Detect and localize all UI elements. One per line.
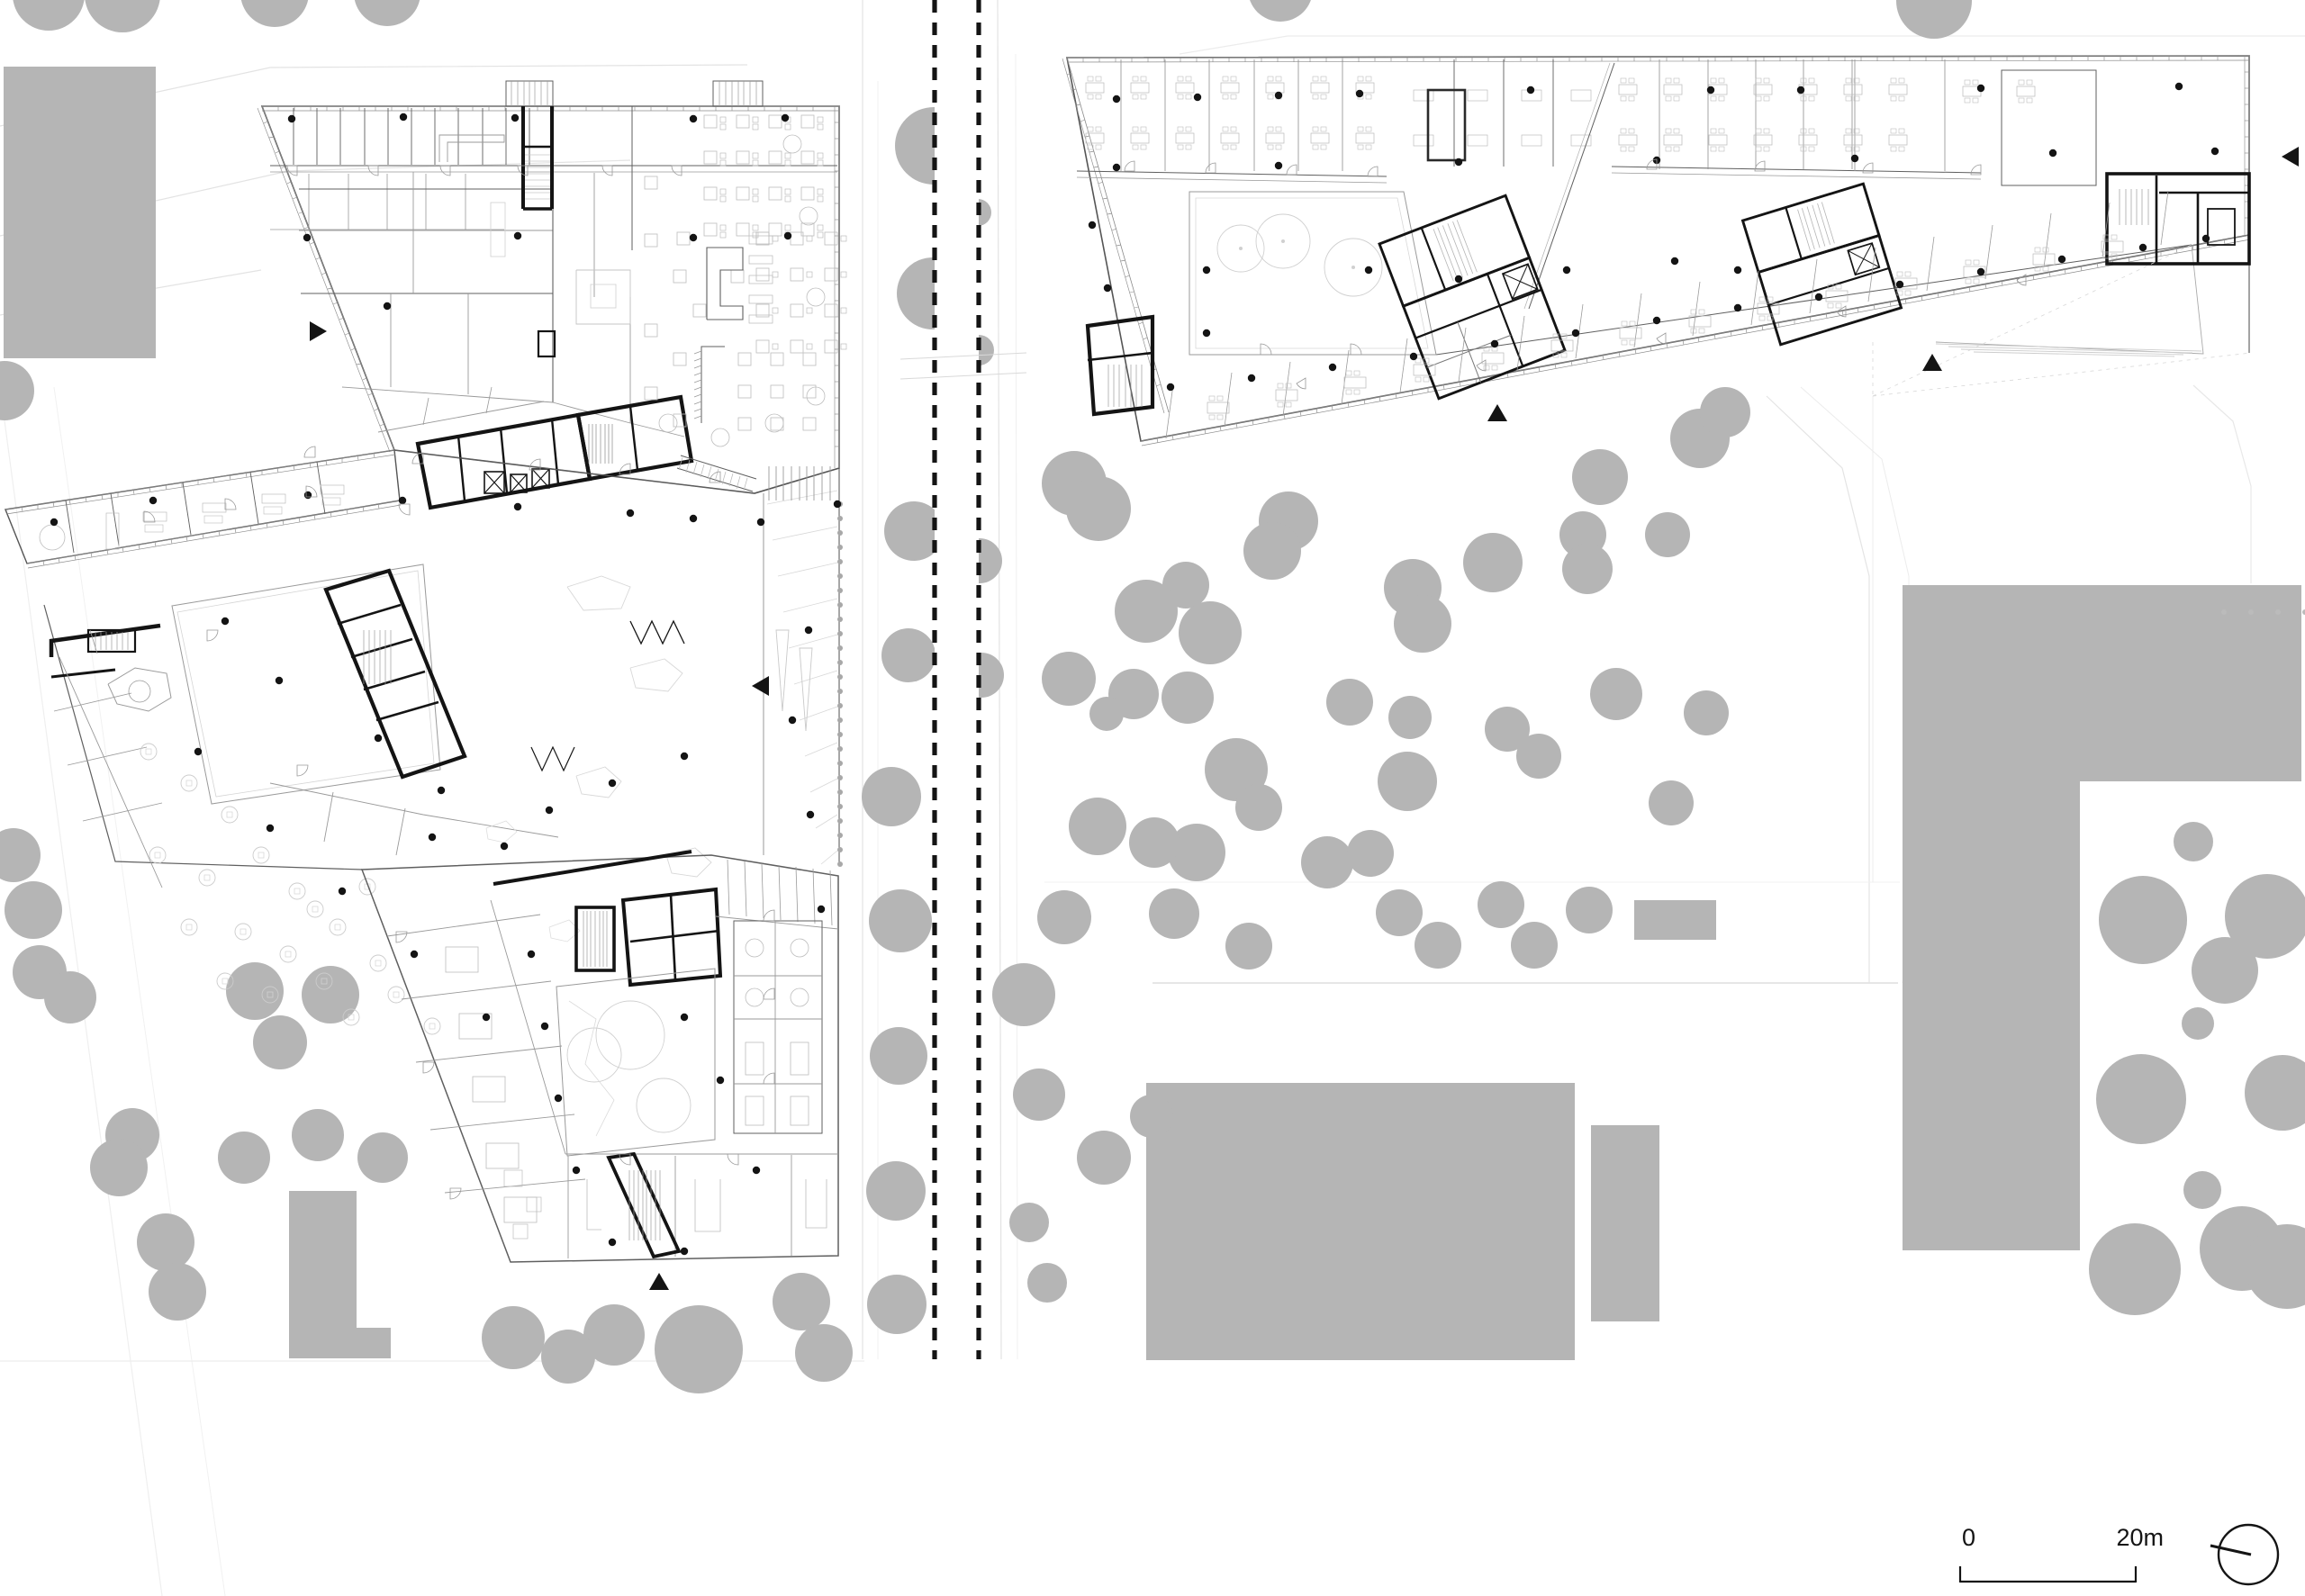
svg-text:0: 0 bbox=[1962, 1524, 1975, 1551]
svg-text:20m: 20m bbox=[2116, 1524, 2164, 1551]
